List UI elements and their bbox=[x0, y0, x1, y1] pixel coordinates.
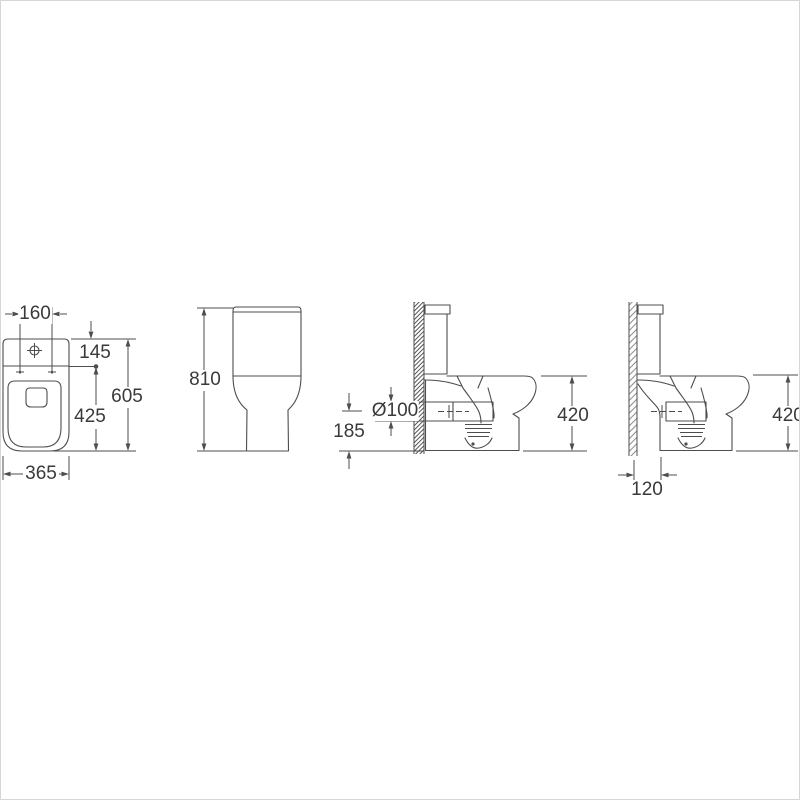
trap-bottom-arc bbox=[678, 438, 705, 448]
dim-160-arrow-right bbox=[52, 312, 60, 317]
dim-810-arrow-bottom bbox=[202, 444, 207, 452]
cistern-lid-outline bbox=[425, 305, 450, 314]
dim-120-arrow-right bbox=[661, 473, 669, 478]
dim-label-420-side: 420 bbox=[556, 406, 590, 426]
pan-outline bbox=[426, 376, 537, 451]
dim-145-down-arrow bbox=[89, 332, 94, 340]
pan-footprint-outline bbox=[3, 339, 69, 451]
dim-label-145: 145 bbox=[78, 343, 112, 363]
seat-hinge-cover-outline bbox=[26, 388, 47, 407]
dim-label-810: 810 bbox=[188, 370, 222, 390]
dim-420b-arrow-bottom bbox=[786, 444, 791, 452]
dim-label-o100: Ø100 bbox=[371, 401, 419, 421]
trap-bottom-arc bbox=[465, 438, 492, 448]
cistern-body-outline bbox=[637, 314, 660, 374]
dim-810-arrow-top bbox=[202, 308, 207, 316]
dim-185-arrow-down bbox=[347, 404, 352, 412]
side-view-outlet bbox=[339, 302, 587, 469]
cistern-body-outline bbox=[424, 314, 447, 374]
dim-label-425: 425 bbox=[73, 407, 107, 427]
trap-curves bbox=[463, 388, 494, 423]
trap-drain-dot bbox=[471, 442, 474, 445]
dim-420b-arrow-top bbox=[786, 375, 791, 383]
dim-120-extension-lines bbox=[634, 457, 661, 481]
dim-label-160: 160 bbox=[18, 304, 52, 324]
dim-label-120: 120 bbox=[630, 480, 664, 500]
wall-hatch-light bbox=[629, 302, 637, 456]
seat-lid-line bbox=[638, 380, 674, 386]
cistern-outline bbox=[233, 307, 301, 376]
dim-365-arrow-left bbox=[3, 472, 11, 477]
dim-label-365: 365 bbox=[24, 464, 58, 484]
cistern-lid-outline bbox=[638, 305, 663, 314]
dim-365-arrow-right bbox=[62, 472, 70, 477]
dim-120-arrow-left bbox=[627, 473, 635, 478]
dim-605-arrow-top bbox=[126, 339, 131, 347]
pan-outline bbox=[638, 376, 749, 451]
bowl-and-pedestal-outline bbox=[233, 376, 301, 451]
dim-label-185: 185 bbox=[332, 422, 366, 442]
technical-drawing-canvas: 160 145 425 605 365 810 185 Ø100 420 120… bbox=[0, 0, 800, 800]
dim-605-arrow-bottom bbox=[126, 444, 131, 452]
dim-420a-arrow-top bbox=[570, 376, 575, 384]
dim-420a-arrow-bottom bbox=[570, 444, 575, 452]
seat-outline bbox=[8, 381, 61, 447]
dim-label-605: 605 bbox=[110, 387, 144, 407]
dim-label-420-btw: 420 bbox=[771, 406, 800, 426]
side-view-back-to-wall bbox=[618, 302, 798, 481]
wall-hatch bbox=[414, 302, 424, 454]
dim-145-up-arrow bbox=[94, 367, 99, 375]
dim-425-arrow-bottom bbox=[94, 444, 99, 452]
seat-lid-line bbox=[425, 380, 461, 386]
trap-curves bbox=[676, 388, 707, 423]
dim-o100-arrow-up bbox=[389, 421, 394, 429]
water-seal-lines bbox=[465, 425, 492, 437]
trap-drain-dot bbox=[684, 442, 687, 445]
water-seal-lines bbox=[678, 425, 705, 437]
dim-185-arrow-up bbox=[347, 451, 352, 459]
flush-button-crosshair bbox=[27, 343, 42, 358]
